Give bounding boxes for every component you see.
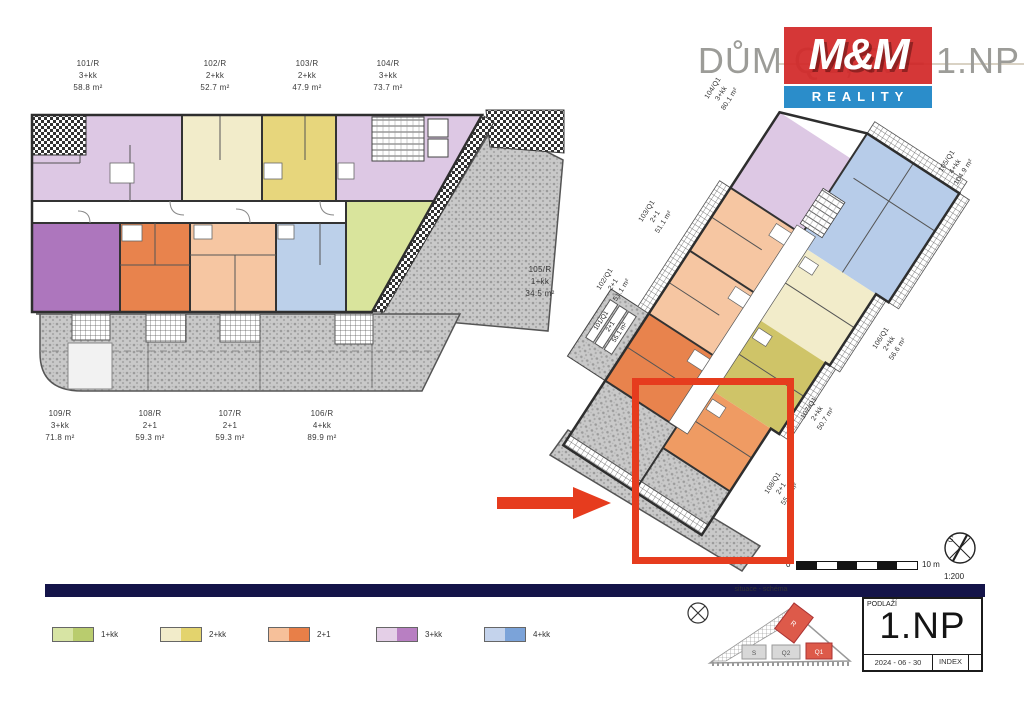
elevator [428,139,448,157]
legend-label: 2+1 [317,627,331,642]
apartment-label-107r: 107/R2+159.3 m² [185,408,275,444]
site-schema: situace - schéma R S Q2 Q1 [682,584,860,679]
apartment-label-101r: 101/R3+kk58.8 m² [43,58,133,94]
logo-reality-text: REALITY [784,86,932,108]
terrace-107r [220,314,260,342]
swatch-dark [73,628,93,641]
legend-swatch [268,627,310,642]
unit-109r-shape [32,223,120,312]
apartment-label-102r: 102/R2+kk52.7 m² [170,58,260,94]
red-highlight-box [632,378,794,564]
legend-swatch [52,627,94,642]
index-label: INDEX [932,655,968,670]
legend-swatch [376,627,418,642]
scale-bar: 0 10 m 1:200 S [780,530,990,582]
arrow-icon [497,486,613,520]
apartment-label-109r: 109/R3+kk71.8 m² [15,408,105,444]
apartment-label-108r: 108/R2+159.3 m² [105,408,195,444]
date-value: 2024 - 06 - 30 [864,658,932,667]
scale-bar-cells [796,561,918,570]
legend-item-3kk: 3+kk [376,626,442,643]
scale-ratio-label: 1:200 [944,572,964,581]
title-block: PODLAŽÍ 1.NP 2024 - 06 - 30 INDEX [862,597,983,672]
stairwell [372,117,424,161]
legend-item-2kk: 2+kk [160,626,226,643]
garden-plot [68,343,112,389]
title-block-bottom-row: 2024 - 06 - 30 INDEX [864,654,981,670]
legend-label: 3+kk [425,627,442,642]
schema-title: situace - schéma [696,586,826,593]
terrace-106r [335,314,373,344]
elevator [428,119,448,137]
floor-value: 1.NP [864,608,981,644]
swatch-dark [289,628,309,641]
schema-label-q2: Q2 [782,650,791,657]
legend-item-4kk: 4+kk [484,626,550,643]
legend-swatch [484,627,526,642]
apartment-label-106r: 106/R4+kk89.9 m² [277,408,367,444]
swatch-light [377,628,397,641]
apartment-label-104r: 104/R3+kk73.7 m² [343,58,433,94]
swatch-light [269,628,289,641]
svg-text:S: S [948,535,954,544]
apartment-label-105r: 105/R1+kk34.5 m² [495,264,585,300]
legend-label: 4+kk [533,627,550,642]
terrace-109r [72,314,110,340]
legend-label: 2+kk [209,627,226,642]
schema-label-s: S [752,650,757,657]
index-cell-empty [968,655,981,670]
apartment-label-103r: 103/R2+kk47.9 m² [262,58,352,94]
legend-swatch [160,627,202,642]
compass-crossed-icon [688,603,708,623]
schema-label-q1: Q1 [815,649,824,656]
unit-103r-shape [262,115,336,201]
terrace-108r [146,314,186,342]
legend-item-1kk: 1+kk [52,626,118,643]
logo-mm-text: M&M [784,27,932,84]
swatch-dark [181,628,201,641]
swatch-light [53,628,73,641]
swatch-dark [397,628,417,641]
swatch-light [161,628,181,641]
legend-item-21: 2+1 [268,626,331,643]
swatch-light [485,628,505,641]
mm-reality-logo: M&M REALITY [784,27,932,108]
legend-label: 1+kk [101,627,118,642]
schema-map: R S Q2 Q1 [682,593,860,673]
swatch-dark [505,628,525,641]
north-compass-icon: S [938,530,982,568]
balcony-hatch-topleft [32,115,86,155]
unit-102r-shape [182,115,262,201]
floorplan-page: { "header": { "title": "DŮM Q1, R – 1.NP… [0,0,1024,705]
